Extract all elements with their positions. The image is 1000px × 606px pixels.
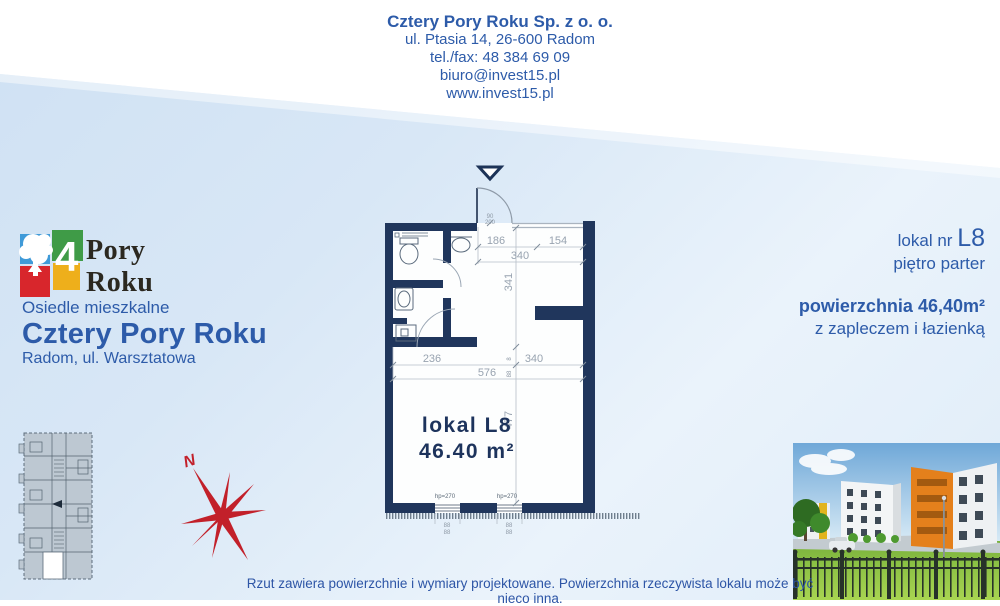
miniplan-balconies <box>19 444 24 569</box>
dim-186: 186 <box>487 235 505 247</box>
window1-dim-a: 88 <box>444 523 451 529</box>
north-label: N <box>182 452 199 472</box>
window1-hp-label: hp=270 <box>435 494 456 500</box>
door-dim-height: 200 <box>485 220 496 226</box>
company-email: biuro@invest15.pl <box>0 67 1000 85</box>
unit-area: powierzchnia 46,40m² <box>725 296 985 317</box>
estate-photo <box>793 443 1000 600</box>
company-header: Cztery Pory Roku Sp. z o. o. ul. Ptasia … <box>0 12 1000 103</box>
company-phone: tel./fax: 48 384 69 09 <box>0 49 1000 67</box>
logo-word-roku: Roku <box>86 267 153 298</box>
exterior-wall-hatch <box>385 513 640 519</box>
unit-floor: piętro parter <box>725 254 985 274</box>
dim-340b: 340 <box>525 353 543 365</box>
dim-340a: 340 <box>511 250 529 262</box>
disclaimer-text: Rzut zawiera powierzchnie i wymiary proj… <box>245 576 815 606</box>
dim-236: 236 <box>423 353 441 365</box>
plan-unit-area: 46.40 m² <box>419 440 515 463</box>
building-overview-plan <box>18 430 98 582</box>
compass-star-icon <box>181 468 266 560</box>
company-website: www.invest15.pl <box>0 85 1000 103</box>
entrance-arrow-icon <box>479 167 501 179</box>
logo-word-pory: Pory <box>86 235 146 266</box>
dim-88: 88 <box>507 370 513 377</box>
window2-dim-b: 88 <box>506 530 513 536</box>
unit-number: L8 <box>957 224 985 252</box>
project-location: Radom, ul. Warsztatowa <box>22 350 196 368</box>
compass-rose: N <box>178 448 270 566</box>
window2-hp-label: hp=270 <box>497 494 518 500</box>
company-address: ul. Ptasia 14, 26-600 Radom <box>0 31 1000 49</box>
dim-341: 341 <box>503 273 515 291</box>
four-seasons-logo: 4 Pory Roku <box>18 228 208 304</box>
floor-plan: 186 154 340 341 236 340 576 477 8 88 90 … <box>368 158 648 568</box>
unit-info-panel: lokal nr L8 piętro parter powierzchnia 4… <box>725 224 985 339</box>
dim-576: 576 <box>478 367 496 379</box>
company-name: Cztery Pory Roku Sp. z o. o. <box>0 12 1000 31</box>
project-type-label: Osiedle mieszkalne <box>22 298 169 318</box>
photo-building-right <box>911 463 997 549</box>
window-1 <box>435 503 460 513</box>
window-2 <box>497 503 522 513</box>
unit-area-note: z zapleczem i łazienką <box>725 319 985 339</box>
project-name: Cztery Pory Roku <box>22 318 267 351</box>
entrance-door <box>477 188 512 223</box>
plan-unit-label: lokal L8 <box>422 414 512 437</box>
window2-dim-a: 88 <box>506 523 513 529</box>
window1-dim-b: 88 <box>444 530 451 536</box>
unit-number-prefix: lokal nr <box>898 231 958 250</box>
dim-154: 154 <box>549 235 567 247</box>
unit-number-line: lokal nr L8 <box>725 224 985 253</box>
photo-building-mid <box>841 481 901 543</box>
miniplan-highlighted-unit <box>43 552 63 579</box>
logo-number: 4 <box>55 233 79 280</box>
